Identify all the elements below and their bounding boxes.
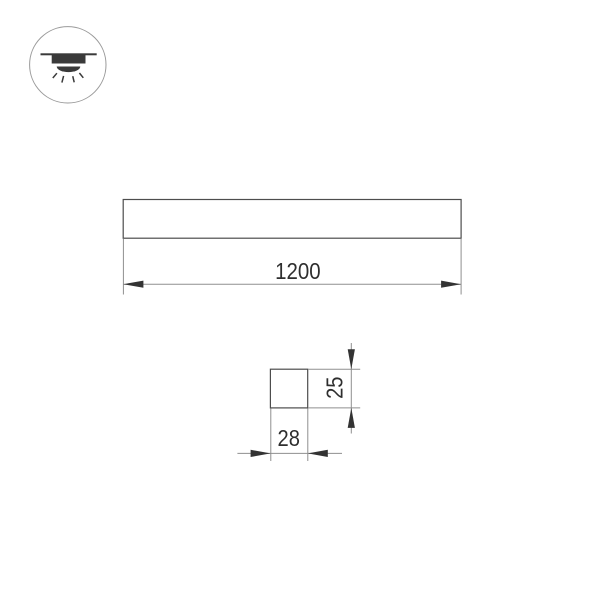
svg-text:28: 28 bbox=[278, 425, 300, 451]
svg-text:1200: 1200 bbox=[275, 258, 321, 284]
svg-text:25: 25 bbox=[322, 377, 348, 399]
